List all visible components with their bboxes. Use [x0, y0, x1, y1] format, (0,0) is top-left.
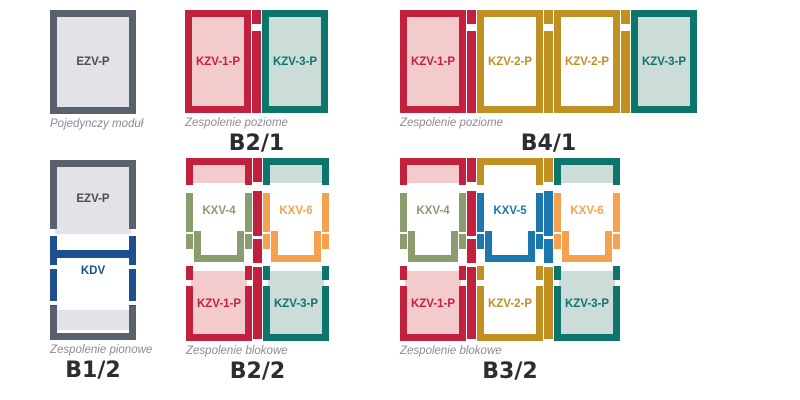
module-label: KZV-1-P: [400, 56, 466, 68]
connector-segment: [467, 31, 476, 113]
connector-segment: [467, 158, 476, 182]
group-caption: Zespolenie poziome: [185, 117, 328, 129]
connector-vertical: [467, 158, 476, 339]
frame-bottom-bracket: [562, 231, 612, 262]
connector-segment: [467, 10, 476, 24]
group-caption: Zespolenie poziome: [400, 117, 697, 129]
connector-segment: [621, 31, 630, 113]
connector-vertical: [544, 158, 553, 339]
group-caption: Zespolenie blokowe: [400, 345, 620, 357]
connector-segment: [252, 10, 261, 24]
connector-vertical: [252, 10, 261, 113]
combo-b1-2: EZV-P KDV: [50, 160, 136, 340]
connector-segment: [253, 191, 262, 236]
module-label: KZV-3-P: [262, 56, 328, 68]
frame-top-stubs: [477, 266, 543, 280]
frame-top-bracket: [554, 158, 620, 185]
connector-segment: [253, 239, 262, 263]
module-ezv-p: EZV-P: [50, 10, 136, 114]
module-label: KZV-1-P: [186, 298, 252, 310]
connector-vertical: [544, 10, 553, 113]
frame-top-bracket: [631, 10, 697, 41]
module-label: KXV-6: [263, 205, 329, 217]
frame-top-bracket: [554, 10, 620, 41]
frame-bottom-bracket: [631, 82, 697, 113]
connector-segment: [544, 10, 553, 24]
frame-bottom-bracket: [271, 231, 321, 262]
connector-segment: [544, 191, 553, 236]
module-label: KZV-1-P: [185, 56, 251, 68]
frame-bottom-bracket: [554, 312, 620, 342]
module-kxv-6: KXV-6: [263, 158, 329, 263]
module-kzv-1-p: KZV-1-P: [400, 266, 466, 341]
frame-top-bracket: [477, 158, 543, 185]
combo-b2-2: KXV-4 KXV-6 KZV-: [186, 158, 329, 341]
group-title: B2/2: [186, 359, 329, 384]
module-label: KXV-6: [554, 205, 620, 217]
frame-top-stubs: [186, 266, 252, 280]
group-b3-2: KXV-4 KXV-5: [400, 158, 620, 384]
group-b2-2: KXV-4 KXV-6 KZV-: [186, 158, 329, 384]
frame-bottom-bracket: [554, 82, 620, 113]
module-label: KZV-2-P: [477, 56, 543, 68]
module-label: EZV-P: [50, 56, 136, 68]
frame-bottom-bracket: [477, 312, 543, 342]
module-label: KDV: [50, 265, 136, 277]
module-label: EZV-P: [50, 193, 136, 205]
module-label: KZV-2-P: [477, 298, 543, 310]
group-caption: Pojedynczy moduł: [50, 118, 136, 130]
connector-segment: [253, 267, 262, 339]
connector-segment: [544, 239, 553, 263]
group-caption: Zespolenie blokowe: [186, 345, 329, 357]
frame-top-stubs: [263, 266, 329, 280]
group-title: B4/1: [400, 131, 697, 156]
frame-bottom-bracket: [194, 231, 244, 262]
frame-bottom-bracket: [185, 82, 251, 113]
frame-top-bracket: [50, 160, 136, 194]
frame-top-bracket: [263, 158, 329, 185]
combo-b2-1: KZV-1-P KZV-3-P: [185, 10, 328, 113]
frame-bottom-bracket: [50, 83, 136, 114]
connector-vertical: [467, 10, 476, 113]
frame-bottom-bracket: [400, 312, 466, 342]
module-kzv-2-p: KZV-2-P: [554, 10, 620, 113]
module-kzv-1-p: KZV-1-P: [400, 10, 466, 113]
connector-segment: [621, 10, 630, 24]
module-kxv-4: KXV-4: [186, 158, 252, 263]
connector-vertical: [253, 158, 262, 339]
connector-segment: [467, 191, 476, 236]
frame-bottom-bracket: [485, 231, 535, 262]
connector-segment: [544, 31, 553, 113]
frame-top-stubs: [554, 266, 620, 280]
connector-vertical: [621, 10, 630, 113]
module-label: KZV-1-P: [400, 298, 466, 310]
frame-top-bracket: [400, 10, 466, 41]
module-kzv-3-p: KZV-3-P: [263, 266, 329, 341]
frame-bottom-bracket: [262, 82, 328, 113]
frame-top-bracket: [185, 10, 251, 41]
kdv-connector-crossbar: [57, 250, 129, 258]
frame-top-bracket: [477, 10, 543, 41]
group-title: B3/2: [400, 359, 620, 384]
group-b2-1: KZV-1-P KZV-3-P Zespolenie poziome B2/1: [185, 10, 328, 156]
module-label: KZV-3-P: [554, 298, 620, 310]
module-kxv-4: KXV-4: [400, 158, 466, 263]
group-b1-2: EZV-P KDV Zespolenie pionowe B1/2: [50, 160, 136, 383]
connector-segment: [253, 158, 262, 182]
module-label: KZV-3-P: [263, 298, 329, 310]
combo-b4-1: KZV-1-P KZV-2-P KZV-: [400, 10, 697, 113]
module-kzv-2-p: KZV-2-P: [477, 10, 543, 113]
module-label: KXV-4: [186, 205, 252, 217]
connector-segment: [467, 239, 476, 263]
group-b4-1: KZV-1-P KZV-2-P KZV-: [400, 10, 697, 156]
connector-segment: [252, 31, 261, 113]
frame-top-bracket: [50, 10, 136, 41]
module-kzv-3-p: KZV-3-P: [262, 10, 328, 113]
module-kzv-3-p: KZV-3-P: [554, 266, 620, 341]
frame-top-bracket: [262, 10, 328, 41]
group-title: B1/2: [50, 358, 136, 383]
flashing-combinations-diagram: EZV-P Pojedynczy moduł KZV-1-P: [0, 0, 800, 400]
module-label: KXV-5: [477, 205, 543, 217]
frame-top-bracket: [186, 158, 252, 185]
module-kzv-1-p: KZV-1-P: [185, 10, 251, 113]
connector-segment: [544, 267, 553, 339]
frame-bottom-bracket: [477, 82, 543, 113]
frame-bottom-bracket: [400, 82, 466, 113]
module-kzv-2-p: KZV-2-P: [477, 266, 543, 341]
frame-bottom-bracket: [50, 306, 136, 340]
module-kzv-3-p: KZV-3-P: [631, 10, 697, 113]
group-title: B2/1: [185, 131, 328, 156]
module-label: KZV-3-P: [631, 56, 697, 68]
module-kxv-6: KXV-6: [554, 158, 620, 263]
frame-bottom-bracket: [186, 312, 252, 342]
frame-bottom-bracket: [408, 231, 458, 262]
module-label: KZV-2-P: [554, 56, 620, 68]
connector-segment: [467, 267, 476, 339]
frame-top-bracket: [400, 158, 466, 185]
group-caption: Zespolenie pionowe: [50, 344, 136, 356]
module-label: KXV-4: [400, 205, 466, 217]
connector-segment: [544, 158, 553, 182]
frame-bottom-bracket: [263, 312, 329, 342]
module-kzv-1-p: KZV-1-P: [186, 266, 252, 341]
combo-single: EZV-P: [50, 10, 136, 114]
group-single-module: EZV-P Pojedynczy moduł: [50, 10, 136, 130]
frame-top-stubs: [400, 266, 466, 280]
combo-b3-2: KXV-4 KXV-5: [400, 158, 620, 341]
module-kxv-5: KXV-5: [477, 158, 543, 263]
